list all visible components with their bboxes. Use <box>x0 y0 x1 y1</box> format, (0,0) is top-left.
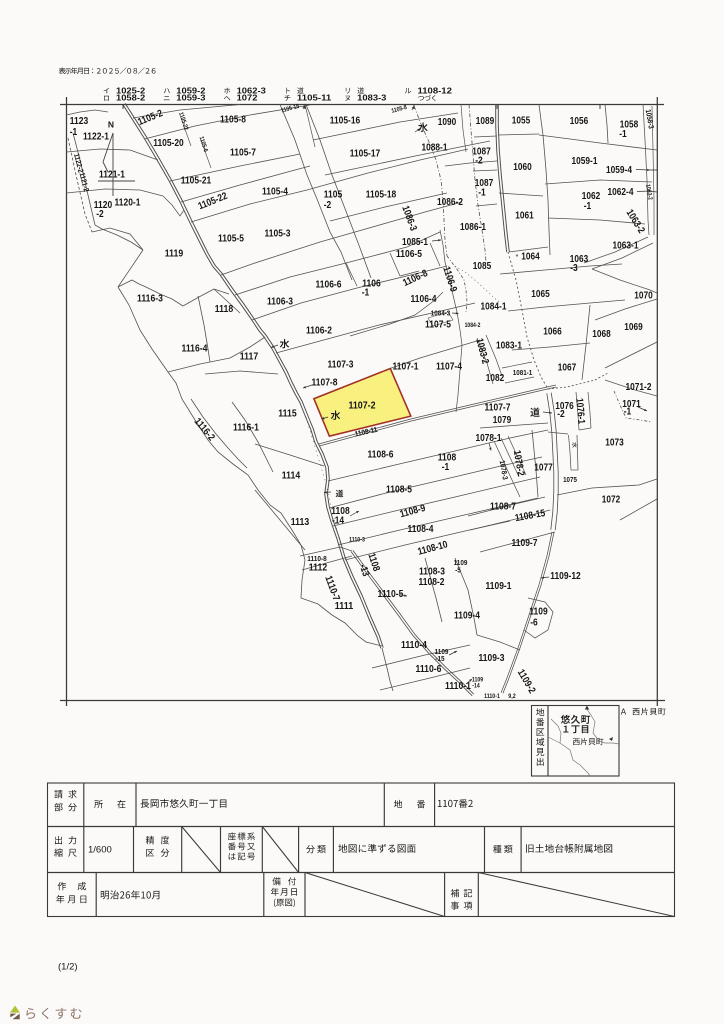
svg-text:1106-5: 1106-5 <box>396 249 422 260</box>
svg-text:1105: 1105 <box>324 190 343 201</box>
svg-text:1071-2: 1071-2 <box>626 382 652 393</box>
svg-text:1084-3: 1084-3 <box>431 309 451 318</box>
svg-text:1106-8: 1106-8 <box>401 268 429 289</box>
svg-text:1107-8: 1107-8 <box>312 378 338 389</box>
svg-text:1077: 1077 <box>534 463 553 474</box>
svg-text:1108-3: 1108-3 <box>419 567 445 578</box>
svg-text:-1: -1 <box>362 288 370 299</box>
svg-text:1072: 1072 <box>237 94 258 103</box>
svg-text:1107-1: 1107-1 <box>393 362 419 373</box>
svg-text:1085-1: 1085-1 <box>402 237 428 248</box>
svg-text:-1: -1 <box>619 129 627 140</box>
svg-text:1121-1: 1121-1 <box>99 170 125 181</box>
svg-text:1109-12: 1109-12 <box>550 571 581 582</box>
svg-text:1108-9: 1108-9 <box>399 503 427 520</box>
svg-text:1106-6: 1106-6 <box>316 280 342 291</box>
svg-text:1109-4: 1109-4 <box>454 611 480 622</box>
svg-text:1110-1: 1110-1 <box>484 693 500 700</box>
svg-text:1105-21: 1105-21 <box>181 176 212 187</box>
svg-text:*: * <box>516 254 519 261</box>
svg-text:1058-2: 1058-2 <box>116 94 146 103</box>
svg-text:1105-16: 1105-16 <box>330 116 361 127</box>
svg-text:-14: -14 <box>332 516 344 527</box>
svg-text:1059-1: 1059-1 <box>572 156 598 167</box>
svg-text:-5: -5 <box>455 566 461 575</box>
svg-text:1116-4: 1116-4 <box>182 344 208 355</box>
svg-text:-14: -14 <box>472 683 480 690</box>
svg-text:-2: -2 <box>96 209 104 220</box>
svg-text:1116-1: 1116-1 <box>233 423 259 434</box>
svg-text:1072: 1072 <box>602 495 621 506</box>
svg-text:1105-3: 1105-3 <box>265 229 291 240</box>
svg-text:1110-3: 1110-3 <box>349 537 365 544</box>
svg-text:1058-3: 1058-3 <box>644 109 656 130</box>
svg-text:1106-4: 1106-4 <box>411 294 437 305</box>
svg-text:1067: 1067 <box>558 363 577 374</box>
svg-text:1105-4: 1105-4 <box>262 187 288 198</box>
svg-text:1086-1: 1086-1 <box>460 222 486 233</box>
svg-text:1118: 1118 <box>215 304 234 315</box>
svg-text:1083-2: 1083-2 <box>473 337 490 365</box>
svg-text:1109-7: 1109-7 <box>512 538 538 549</box>
svg-text:1081-1: 1081-1 <box>513 368 533 377</box>
svg-text:-1: -1 <box>70 127 78 138</box>
svg-text:1107-5: 1107-5 <box>425 320 451 331</box>
svg-text:1070: 1070 <box>634 291 653 302</box>
svg-text:-3: -3 <box>570 263 578 274</box>
svg-text:1056: 1056 <box>570 116 589 127</box>
svg-text:(1/2): (1/2) <box>58 962 78 973</box>
svg-text:1085: 1085 <box>473 261 492 272</box>
svg-text:1075: 1075 <box>563 475 577 484</box>
svg-text:1059-4: 1059-4 <box>606 165 632 176</box>
svg-text:1105-20: 1105-20 <box>153 138 184 149</box>
svg-text:1086-2: 1086-2 <box>437 197 463 208</box>
svg-text:1108-7: 1108-7 <box>490 502 516 513</box>
svg-text:1105-5: 1105-5 <box>218 234 244 245</box>
svg-text:1063-2: 1063-2 <box>624 208 647 236</box>
svg-text:1073: 1073 <box>605 438 624 449</box>
svg-text:-2: -2 <box>475 156 483 167</box>
svg-text:1055: 1055 <box>512 116 531 127</box>
svg-text:-1: -1 <box>584 201 592 212</box>
svg-text:1120-1: 1120-1 <box>115 198 141 209</box>
svg-text:1105-22: 1105-22 <box>177 111 190 131</box>
svg-text:1107-4: 1107-4 <box>436 362 462 373</box>
svg-text:-1: -1 <box>624 407 632 418</box>
svg-text:-1: -1 <box>478 188 486 199</box>
svg-text:1109-1: 1109-1 <box>486 581 512 592</box>
svg-text:1084-2: 1084-2 <box>465 322 481 329</box>
svg-text:1108-15: 1108-15 <box>514 508 546 524</box>
svg-text:1106-3: 1106-3 <box>267 297 293 308</box>
svg-text:1108-2: 1108-2 <box>419 577 445 588</box>
svg-text:1107-2: 1107-2 <box>348 399 375 411</box>
svg-text:1122-2: 1122-2 <box>72 152 85 173</box>
svg-text:1108-6: 1108-6 <box>368 450 394 461</box>
svg-text:1106-9: 1106-9 <box>440 265 459 293</box>
svg-text:1116-3: 1116-3 <box>137 294 163 305</box>
svg-text:1063-1: 1063-1 <box>613 241 639 252</box>
svg-text:1105-17: 1105-17 <box>350 149 381 160</box>
svg-text:1078-1: 1078-1 <box>476 433 502 444</box>
svg-text:1113: 1113 <box>291 517 310 528</box>
svg-text:1110-7: 1110-7 <box>322 574 341 602</box>
svg-text:1105-6: 1105-6 <box>198 136 210 154</box>
svg-text:1109-3: 1109-3 <box>479 653 505 664</box>
svg-text:1083-3: 1083-3 <box>357 94 387 103</box>
svg-text:1105-22: 1105-22 <box>197 191 230 213</box>
svg-text:1108-12: 1108-12 <box>418 86 453 95</box>
svg-text:1/600: 1/600 <box>88 845 112 856</box>
svg-text:1122-1: 1122-1 <box>83 132 109 143</box>
svg-text:1114: 1114 <box>282 471 301 482</box>
svg-text:1112: 1112 <box>309 563 328 574</box>
svg-text:1068: 1068 <box>592 329 611 340</box>
svg-text:1089: 1089 <box>476 116 495 127</box>
svg-text:A: A <box>621 708 627 717</box>
svg-text:-2: -2 <box>324 200 332 211</box>
svg-text:1076-1: 1076-1 <box>573 398 586 425</box>
svg-text:1069: 1069 <box>624 322 643 333</box>
svg-text:1109-2: 1109-2 <box>515 668 538 696</box>
svg-text:1111: 1111 <box>335 601 354 612</box>
svg-text:1110-6: 1110-6 <box>416 664 442 675</box>
svg-text:1117: 1117 <box>240 352 259 363</box>
svg-text:1115: 1115 <box>278 409 297 420</box>
svg-text:1107-7: 1107-7 <box>485 403 511 414</box>
svg-text:1110-4: 1110-4 <box>401 640 427 651</box>
svg-text:1063-2: 1063-2 <box>644 184 654 201</box>
svg-text:1105-11: 1105-11 <box>297 94 332 103</box>
svg-text:-1: -1 <box>442 462 450 473</box>
svg-text:1090: 1090 <box>438 117 457 128</box>
svg-text:1123: 1123 <box>70 116 89 127</box>
svg-text:9,2: 9,2 <box>508 693 516 700</box>
svg-text:1105-7: 1105-7 <box>230 148 256 159</box>
svg-text:1082: 1082 <box>486 373 505 384</box>
svg-text:1107-3: 1107-3 <box>328 360 354 371</box>
svg-text:1078-3: 1078-3 <box>498 460 510 481</box>
svg-text:1078-2: 1078-2 <box>511 449 526 477</box>
svg-text:-15: -15 <box>435 654 444 663</box>
svg-text:1061: 1061 <box>515 211 534 222</box>
svg-text:-6: -6 <box>530 618 538 629</box>
svg-text:1059-3: 1059-3 <box>176 94 206 103</box>
svg-text:1084-1: 1084-1 <box>481 302 507 313</box>
svg-text:1079: 1079 <box>493 415 512 426</box>
svg-text:1105-18: 1105-18 <box>366 190 397 201</box>
svg-text:1108-10: 1108-10 <box>417 539 450 558</box>
svg-text:1105-2: 1105-2 <box>136 108 164 128</box>
svg-text:1109: 1109 <box>529 607 548 618</box>
svg-text:1105-8: 1105-8 <box>391 104 409 115</box>
svg-text:1083-1: 1083-1 <box>496 341 522 352</box>
svg-text:1064: 1064 <box>521 252 540 263</box>
svg-text:1062-4: 1062-4 <box>608 187 634 198</box>
svg-text:1108-4: 1108-4 <box>408 524 434 535</box>
svg-text:-2: -2 <box>557 409 565 420</box>
svg-text:N: N <box>108 120 114 130</box>
svg-text:1106-2: 1106-2 <box>306 326 332 337</box>
svg-text:1119: 1119 <box>165 249 184 260</box>
svg-text:1108-5: 1108-5 <box>386 485 412 496</box>
svg-text:1105-8: 1105-8 <box>220 115 246 126</box>
svg-text:1060: 1060 <box>513 162 532 173</box>
svg-text:1066: 1066 <box>543 327 562 338</box>
svg-text:1065: 1065 <box>531 289 550 300</box>
svg-text:1088-1: 1088-1 <box>422 143 448 154</box>
